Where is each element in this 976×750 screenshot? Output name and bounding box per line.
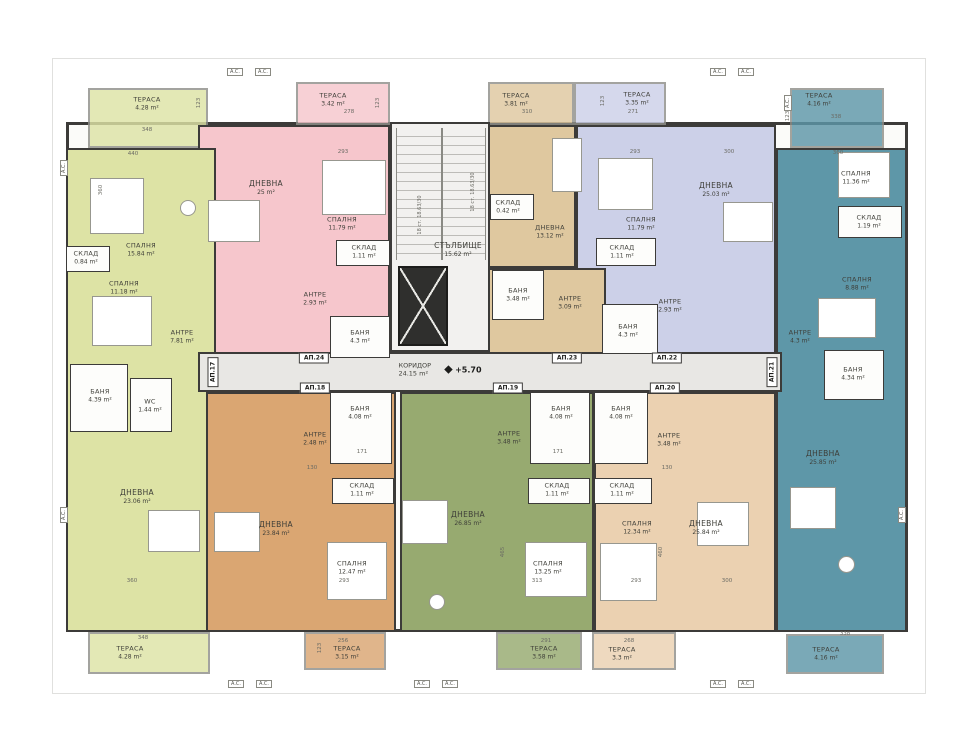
badge-ap17[interactable]: АП.17 <box>208 357 219 387</box>
terrace-ap17-bottom <box>88 632 210 674</box>
dimension-label: 460 <box>658 547 664 558</box>
dimension-label: 300 <box>722 578 733 584</box>
label-ap17-bedroom2: СПАЛНЯ11.18 m² <box>109 280 139 297</box>
label-staircase: СТЪЛБИЩЕ15.62 m² <box>434 241 482 259</box>
dimension-label: 313 <box>532 578 543 584</box>
level-marker: +5.70 <box>445 366 481 375</box>
dining-table <box>208 200 260 242</box>
badge-ap24[interactable]: АП.24 <box>299 353 329 364</box>
ac-unit-label: A.C. <box>60 160 68 176</box>
dimension-label: 360 <box>98 185 104 196</box>
label-ap24-terrace: ТЕРАСА3.42 m² <box>319 92 346 109</box>
label-ap21-bedroom2: СПАЛНЯ8.88 m² <box>842 276 872 293</box>
ac-unit-label: A.C. <box>255 68 271 76</box>
label-ap22-sklad: СКЛАД1.11 m² <box>609 244 634 261</box>
dimension-label: 293 <box>631 578 642 584</box>
dining-table <box>402 500 448 544</box>
ac-unit-label: A.C. <box>784 95 792 111</box>
dimension-label: 293 <box>630 149 641 155</box>
dimension-label: 123 <box>375 98 381 109</box>
dimension-label: 123 <box>785 111 791 122</box>
ac-unit-label: A.C. <box>442 680 458 688</box>
label-ap23-antre: АНТРЕ3.09 m² <box>558 295 582 312</box>
bed <box>818 298 876 338</box>
label-ap19-antre: АНТРЕ3.48 m² <box>497 430 521 447</box>
dimension-label: 171 <box>553 449 564 455</box>
label-ap18-sklad: СКЛАД1.11 m² <box>349 482 374 499</box>
dimension-label: 123 <box>317 643 323 654</box>
dimension-label: 465 <box>500 547 506 558</box>
badge-ap22[interactable]: АП.22 <box>652 353 682 364</box>
label-ap19-living: ДНЕВНА26.85 m² <box>451 510 485 528</box>
label-ap20-sklad: СКЛАД1.11 m² <box>609 482 634 499</box>
label-ap17-bedroom1: СПАЛНЯ15.84 m² <box>126 242 156 259</box>
bed <box>600 543 657 601</box>
label-ap19-bath: БАНЯ4.08 m² <box>549 405 573 422</box>
badge-ap19[interactable]: АП.19 <box>493 383 523 394</box>
label-ap24-sklad: СКЛАД1.11 m² <box>351 244 376 261</box>
label-ap20-bath: БАНЯ4.08 m² <box>609 405 633 422</box>
corridor-region <box>198 352 782 392</box>
label-ap24-living: ДНЕВНА25 m² <box>249 179 283 197</box>
side-table <box>429 594 445 610</box>
bed <box>322 160 386 215</box>
label-ap18-terrace: ТЕРАСА3.15 m² <box>333 645 360 662</box>
label-ap21-bath: БАНЯ4.34 m² <box>841 366 865 383</box>
label-ap21-sklad: СКЛАД1.19 m² <box>856 214 881 231</box>
label-ap17-living: ДНЕВНА23.06 m² <box>120 488 154 506</box>
ac-unit-label: A.C. <box>710 68 726 76</box>
elevator-shaft <box>398 266 448 346</box>
label-ap18-antre: АНТРЕ2.48 m² <box>303 431 327 448</box>
badge-ap20[interactable]: АП.20 <box>650 383 680 394</box>
label-ap17-bath: БАНЯ4.39 m² <box>88 388 112 405</box>
badge-ap21[interactable]: АП.21 <box>767 357 778 387</box>
badge-ap23[interactable]: АП.23 <box>552 353 582 364</box>
dimension-label: 123 <box>600 96 606 107</box>
label-ap24-bath: БАНЯ4.3 m² <box>350 329 370 346</box>
label-ap24-antre: АНТРЕ2.93 m² <box>303 291 327 308</box>
dining-table <box>148 510 200 552</box>
label-ap18-bath: БАНЯ4.08 m² <box>348 405 372 422</box>
label-ap19-bedroom: СПАЛНЯ13.25 m² <box>533 560 563 577</box>
ac-unit-label: A.C. <box>227 68 243 76</box>
label-ap20-terrace: ТЕРАСА3.3 m² <box>608 646 635 663</box>
label-ap17-sklad: СКЛАД0.84 m² <box>73 250 98 267</box>
label-ap17-antre: АНТРЕ7.81 m² <box>170 329 194 346</box>
label-ap21-terrace-top: ТЕРАСА4.16 m² <box>805 92 832 109</box>
label-ap23-bath: БАНЯ3.48 m² <box>506 287 530 304</box>
dimension-label: 268 <box>624 638 635 644</box>
dimension-label: 360 <box>833 150 844 156</box>
dimension-label: 256 <box>338 638 349 644</box>
ac-unit-label: A.C. <box>414 680 430 688</box>
dimension-label: 293 <box>338 149 349 155</box>
terrace-ap23 <box>488 82 574 125</box>
label-ap21-living: ДНЕВНА25.85 m² <box>806 449 840 467</box>
dimension-label: 338 <box>840 631 851 637</box>
label-ap22-living: ДНЕВНА25.03 m² <box>699 181 733 199</box>
bed <box>92 296 152 346</box>
label-ap19-terrace: ТЕРАСА3.58 m² <box>530 645 557 662</box>
corridor-label-group: КОРИДОР 24.15 m² +5.70 <box>398 362 481 379</box>
dimension-label: 310 <box>522 109 533 115</box>
label-ap21-terrace-bottom: ТЕРАСА4.16 m² <box>812 646 839 663</box>
label-ap23-living: ДНЕВНА13.12 m² <box>535 224 565 241</box>
label-ap21-bedroom1: СПАЛНЯ11.36 m² <box>841 170 871 187</box>
dimension-label: 348 <box>142 127 153 133</box>
room-ap20-bath <box>594 392 648 464</box>
dining-table <box>790 487 836 529</box>
dimension-label: 278 <box>344 109 355 115</box>
label-ap20-bedroom: СПАЛНЯ12.34 m² <box>622 520 652 537</box>
ac-unit-label: A.C. <box>228 680 244 688</box>
dimension-label: 291 <box>541 638 552 644</box>
ac-unit-label: A.C. <box>60 507 68 523</box>
dining-table <box>214 512 260 552</box>
label-ap18-living: ДНЕВНА23.84 m² <box>259 520 293 538</box>
bed <box>598 158 653 210</box>
label-ap23-sklad: СКЛАД0.42 m² <box>495 199 520 216</box>
dimension-label: 130 <box>662 465 673 471</box>
ac-unit-label: A.C. <box>710 680 726 688</box>
dimension-label: 440 <box>128 151 139 157</box>
dimension-label: 171 <box>357 449 368 455</box>
dimension-label: 123 <box>196 98 202 109</box>
label-ap17-wc: WC1.44 m² <box>138 398 162 415</box>
side-table <box>838 556 855 573</box>
label-ap17-terrace-top: ТЕРАСА4.28 m² <box>133 96 160 113</box>
label-ap20-antre: АНТРЕ3.48 m² <box>657 432 681 449</box>
dimension-label: 360 <box>127 578 138 584</box>
dimension-label: 293 <box>339 578 350 584</box>
dimension-label: 130 <box>307 465 318 471</box>
ac-unit-label: A.C. <box>898 507 906 523</box>
side-table <box>180 200 196 216</box>
label-ap20-living: ДНЕВНА25.84 m² <box>689 519 723 537</box>
label-ap22-antre: АНТРЕ2.93 m² <box>658 298 682 315</box>
bed <box>552 138 582 192</box>
dining-table <box>723 202 773 242</box>
terrace-ap22 <box>574 82 666 125</box>
label-ap18-bedroom: СПАЛНЯ12.47 m² <box>337 560 367 577</box>
badge-ap18[interactable]: АП.18 <box>300 383 330 394</box>
dimension-label: 271 <box>628 109 639 115</box>
floor-plan: ТЕРАСА4.28 m² СПАЛНЯ15.84 m² СКЛАД0.84 m… <box>0 0 976 750</box>
label-ap17-terrace-bottom: ТЕРАСА4.28 m² <box>116 645 143 662</box>
level-marker-icon <box>444 366 452 374</box>
dimension-label: 338 <box>831 114 842 120</box>
ac-unit-label: A.C. <box>738 680 754 688</box>
dimension-label: 348 <box>138 635 149 641</box>
ac-unit-label: A.C. <box>738 68 754 76</box>
ac-unit-label: A.C. <box>256 680 272 688</box>
label-corridor: КОРИДОР 24.15 m² <box>398 362 431 379</box>
level-value: +5.70 <box>455 366 481 375</box>
label-ap22-bath: БАНЯ4.3 m² <box>618 323 638 340</box>
label-ap22-bedroom: СПАЛНЯ11.79 m² <box>626 216 656 233</box>
dimension-label: 300 <box>724 149 735 155</box>
stair-flight-note: 18 ст. 18.63/30 <box>417 195 423 234</box>
label-ap23-terrace: ТЕРАСА3.81 m² <box>502 92 529 109</box>
label-ap22-terrace: ТЕРАСА3.35 m² <box>623 91 650 108</box>
label-ap21-antre: АНТРЕ4.3 m² <box>789 329 812 346</box>
label-ap24-bedroom: СПАЛНЯ11.79 m² <box>327 216 357 233</box>
stair-flight-note: 18 ст. 18.63/30 <box>470 172 476 211</box>
label-ap19-sklad: СКЛАД1.11 m² <box>544 482 569 499</box>
